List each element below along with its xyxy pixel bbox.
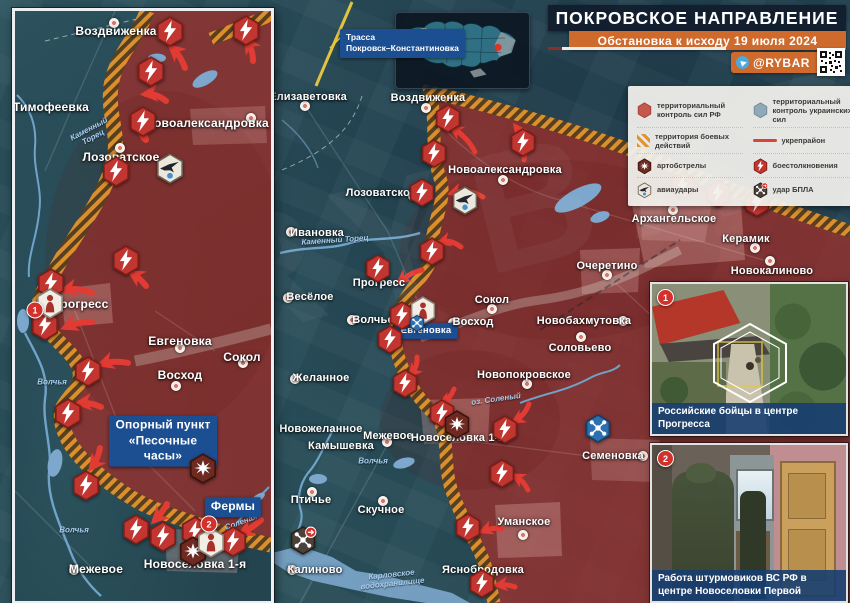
town-label: Сокол — [475, 294, 509, 306]
town-label: Скучное — [358, 504, 405, 516]
town-label: Евгеновка — [148, 334, 212, 348]
water-label: Волчья — [37, 378, 67, 387]
ua-control-icon — [753, 102, 768, 118]
legend-item-aviation: авиаудары — [637, 178, 743, 201]
page-subtitle: Обстановка к исходу 19 июля 2024 — [598, 34, 818, 48]
trassa-callout-label: Трасса Покровск–Константиновка — [340, 29, 465, 58]
rybar-channel-badge: @RYBAR — [731, 52, 823, 73]
aviation-icon — [452, 186, 479, 215]
clash-icon — [392, 369, 419, 398]
telegram-icon — [736, 56, 749, 69]
town-label: Семеновка — [582, 450, 644, 462]
clash-icon — [365, 254, 392, 283]
title-bar: ПОКРОВСКОЕ НАПРАВЛЕНИЕ — [548, 5, 846, 31]
town-label: Желанное — [293, 372, 350, 384]
artillery-icon — [637, 158, 652, 174]
photo-marker-badge: 2 — [657, 450, 674, 467]
clash-icon — [492, 415, 519, 444]
channel-name: @RYBAR — [753, 56, 810, 70]
town-label: Елизаветовка — [269, 91, 347, 103]
clash-icon — [102, 156, 131, 187]
clash-icon — [74, 356, 103, 387]
aviation-icon — [637, 182, 652, 198]
town-label: Лозоватское — [346, 187, 417, 199]
town-label: Новоалександровка — [145, 116, 269, 130]
town-label: Уманское — [498, 516, 551, 528]
clash-icon — [149, 521, 178, 552]
town-label: Фермы — [205, 497, 261, 517]
clash-icon — [421, 139, 448, 168]
town-label: Сокол — [223, 350, 261, 364]
numbered-marker-badge: 2 — [201, 516, 218, 533]
town-dot — [576, 332, 586, 342]
uav-blue-icon — [409, 315, 425, 332]
uav-icon — [290, 526, 317, 555]
photo-caption: Российские бойцы в центре Прогресса — [652, 403, 846, 434]
legend-item-uav: удар БПЛА — [753, 178, 850, 201]
clash-icon — [54, 398, 83, 429]
town-label: Новоалександровка — [448, 164, 562, 176]
attack-arrow — [498, 585, 515, 587]
legend-item-rf-control: территориальный контроль сил РФ — [637, 93, 743, 128]
aviation-icon — [156, 153, 185, 184]
town-label: Восход — [452, 316, 493, 328]
inset-map: ВоздвиженкаТимофеевкаНовоалександровкаЛо… — [12, 8, 274, 603]
town-label: Ивановка — [290, 227, 344, 239]
town-label: Камышевка — [308, 440, 374, 452]
town-label: Новобахмутовка — [537, 315, 631, 327]
town-label: Воздвиженка — [75, 24, 156, 38]
numbered-marker-badge: 1 — [27, 302, 44, 319]
clash-icon — [156, 16, 185, 47]
uav-icon — [753, 182, 768, 198]
clash-icon — [112, 245, 141, 276]
uav-blue-icon — [585, 414, 612, 443]
clash-icon — [72, 470, 101, 501]
clash-icon — [469, 569, 496, 598]
fortline-icon — [753, 139, 777, 142]
town-label: Птичье — [291, 494, 332, 506]
pokrovsk-direction-map: ЕлизаветовкаВоздвиженкаНовоалександровка… — [0, 0, 850, 603]
town-dot — [518, 530, 528, 540]
legend-item-fortline: укрепрайон — [753, 128, 850, 154]
town-label: Тимофеевка — [13, 100, 89, 114]
clash-icon — [129, 106, 158, 137]
town-label: Новопокровское — [477, 369, 571, 381]
town-dot — [171, 381, 181, 391]
clash-icon — [419, 237, 446, 266]
target-hexagon-highlight — [704, 320, 796, 406]
water-label: Волчья — [59, 526, 89, 535]
page-title: ПОКРОВСКОЕ НАПРАВЛЕНИЕ — [556, 8, 839, 29]
town-label: Очеретино — [576, 260, 637, 272]
clash-icon — [137, 56, 166, 87]
artillery-icon — [444, 410, 471, 439]
clash-icon — [409, 178, 436, 207]
town-dot — [498, 175, 508, 185]
town-label: Архангельское — [632, 213, 717, 225]
clash-icon — [122, 514, 151, 545]
conflict-location-dot — [494, 44, 501, 51]
town-label: Калиново — [287, 564, 342, 576]
attack-arrow — [102, 362, 128, 364]
clash-icon — [455, 513, 482, 542]
legend-item-artillery: артобстрелы — [637, 154, 743, 178]
town-label: Новокалиново — [731, 265, 813, 277]
photo-inset-progress: 1 Российские бойцы в центре Прогресса — [650, 282, 848, 436]
town-label: Новожеланное — [279, 423, 362, 435]
town-label: Восход — [158, 368, 203, 382]
town-label: Соловьево — [549, 342, 612, 354]
clash-icon — [377, 325, 404, 354]
clash-icon — [489, 459, 516, 488]
combat-zone-icon — [637, 134, 650, 147]
qr-code — [817, 48, 845, 76]
legend-item-ua-control: территориальный контроль украинских сил — [753, 93, 850, 128]
rf-control-icon — [637, 102, 652, 118]
artillery-icon — [189, 453, 218, 484]
photo-marker-badge: 1 — [657, 289, 674, 306]
legend-item-combat-zone: территория боевых действий — [637, 128, 743, 154]
water-label: Волчья — [358, 457, 388, 466]
town-label: Межевое — [69, 562, 123, 576]
town-label: Весёлое — [286, 291, 333, 303]
town-label: Керамик — [722, 233, 769, 245]
clash-icon — [435, 104, 462, 133]
attack-arrow — [483, 528, 502, 531]
clash-icon — [753, 158, 768, 174]
clash-icon — [232, 15, 261, 46]
photo-inset-novoselovka: 2 Работа штурмовиков ВС РФ в центре Ново… — [650, 443, 848, 603]
legend-item-clash: боестолкновения — [753, 154, 850, 178]
legend-panel: территориальный контроль сил РФ территор… — [628, 86, 850, 206]
clash-icon — [510, 128, 537, 157]
town-label: Воздвиженка — [391, 92, 466, 104]
town-dot — [421, 103, 431, 113]
title-underline — [548, 47, 726, 50]
photo-caption: Работа штурмовиков ВС РФ в центре Новосе… — [652, 570, 846, 601]
